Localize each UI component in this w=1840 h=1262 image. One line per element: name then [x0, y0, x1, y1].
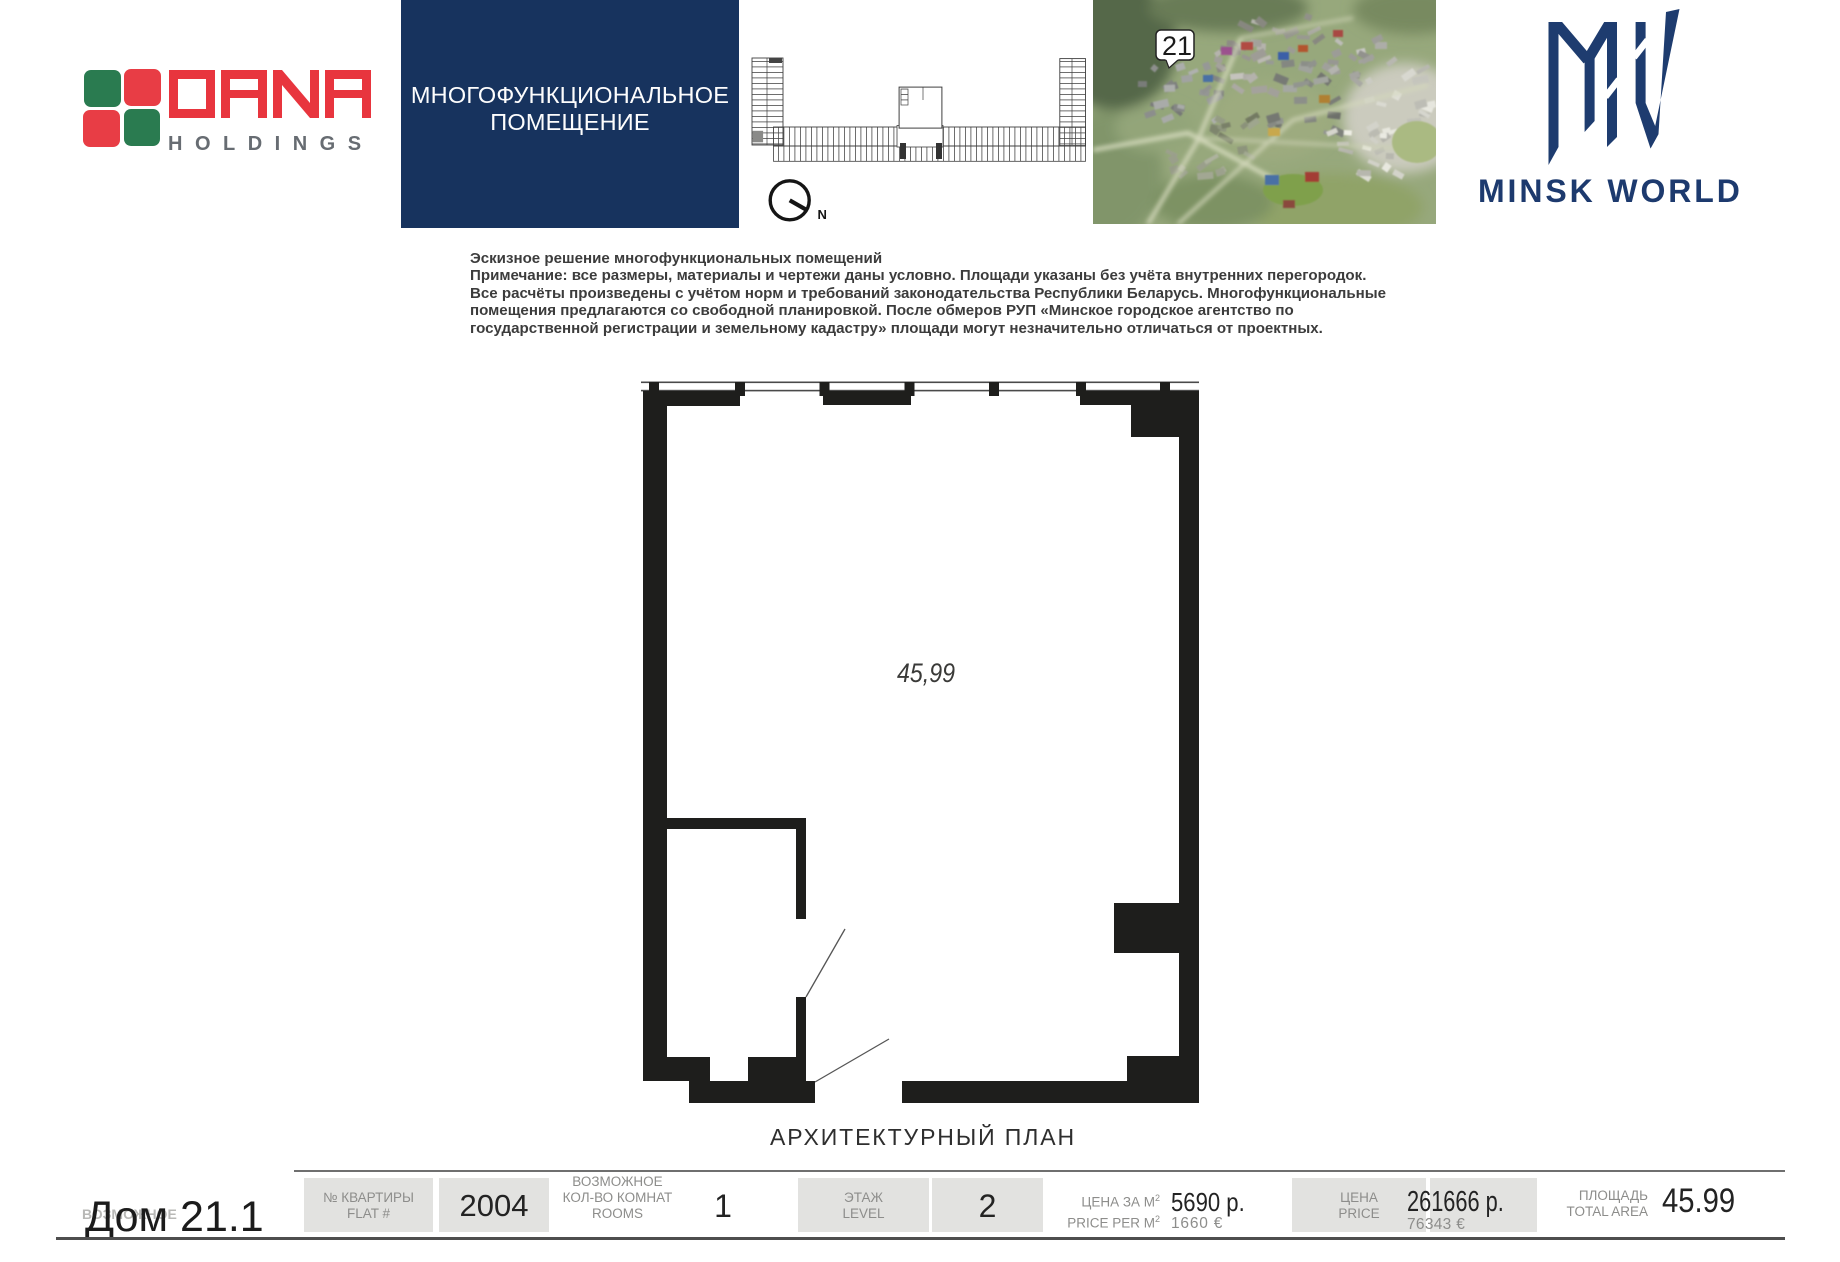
svg-text:45,99: 45,99	[897, 658, 955, 688]
